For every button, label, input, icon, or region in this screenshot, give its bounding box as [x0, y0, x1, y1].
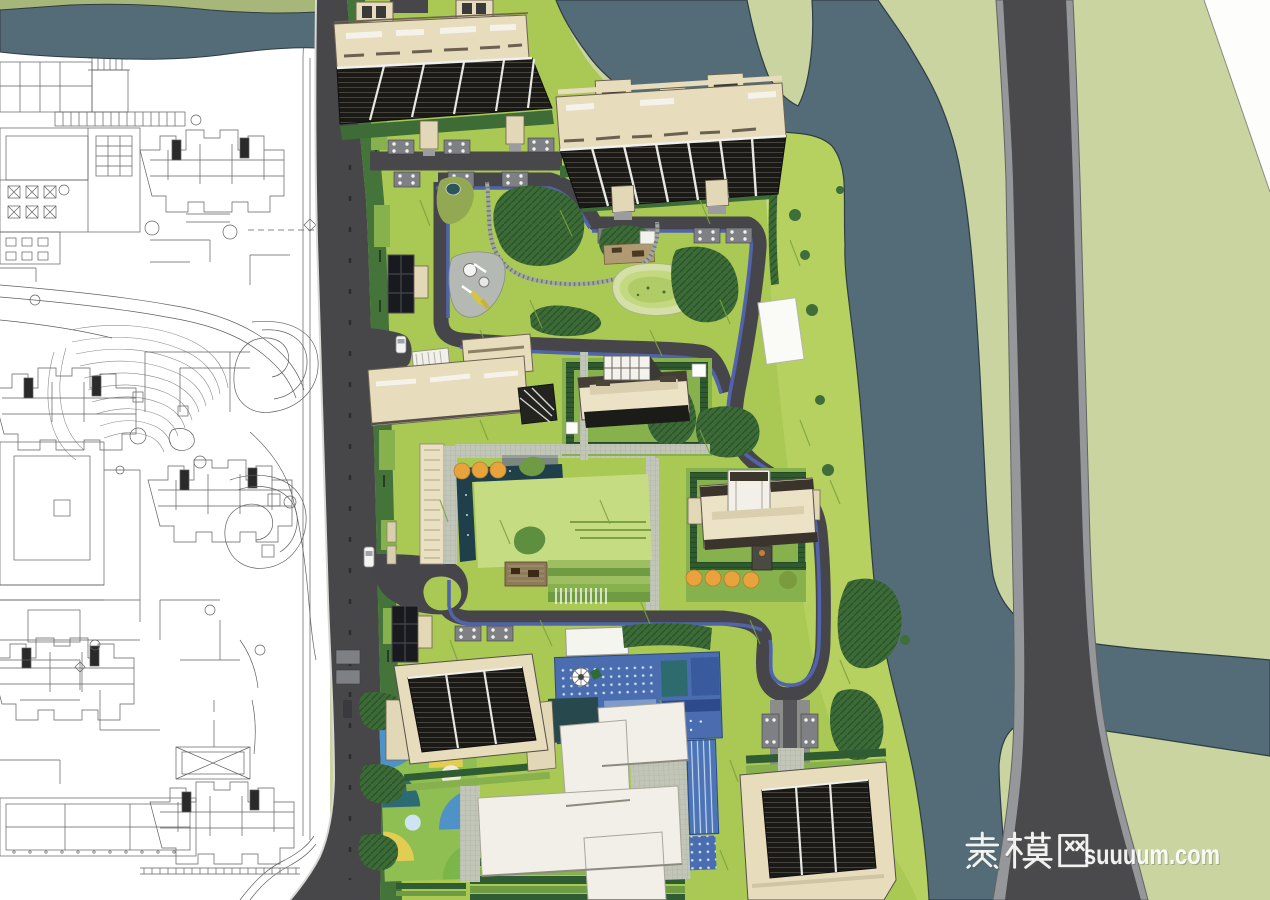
svg-text:suuuum.com: suuuum.com — [1084, 839, 1220, 870]
